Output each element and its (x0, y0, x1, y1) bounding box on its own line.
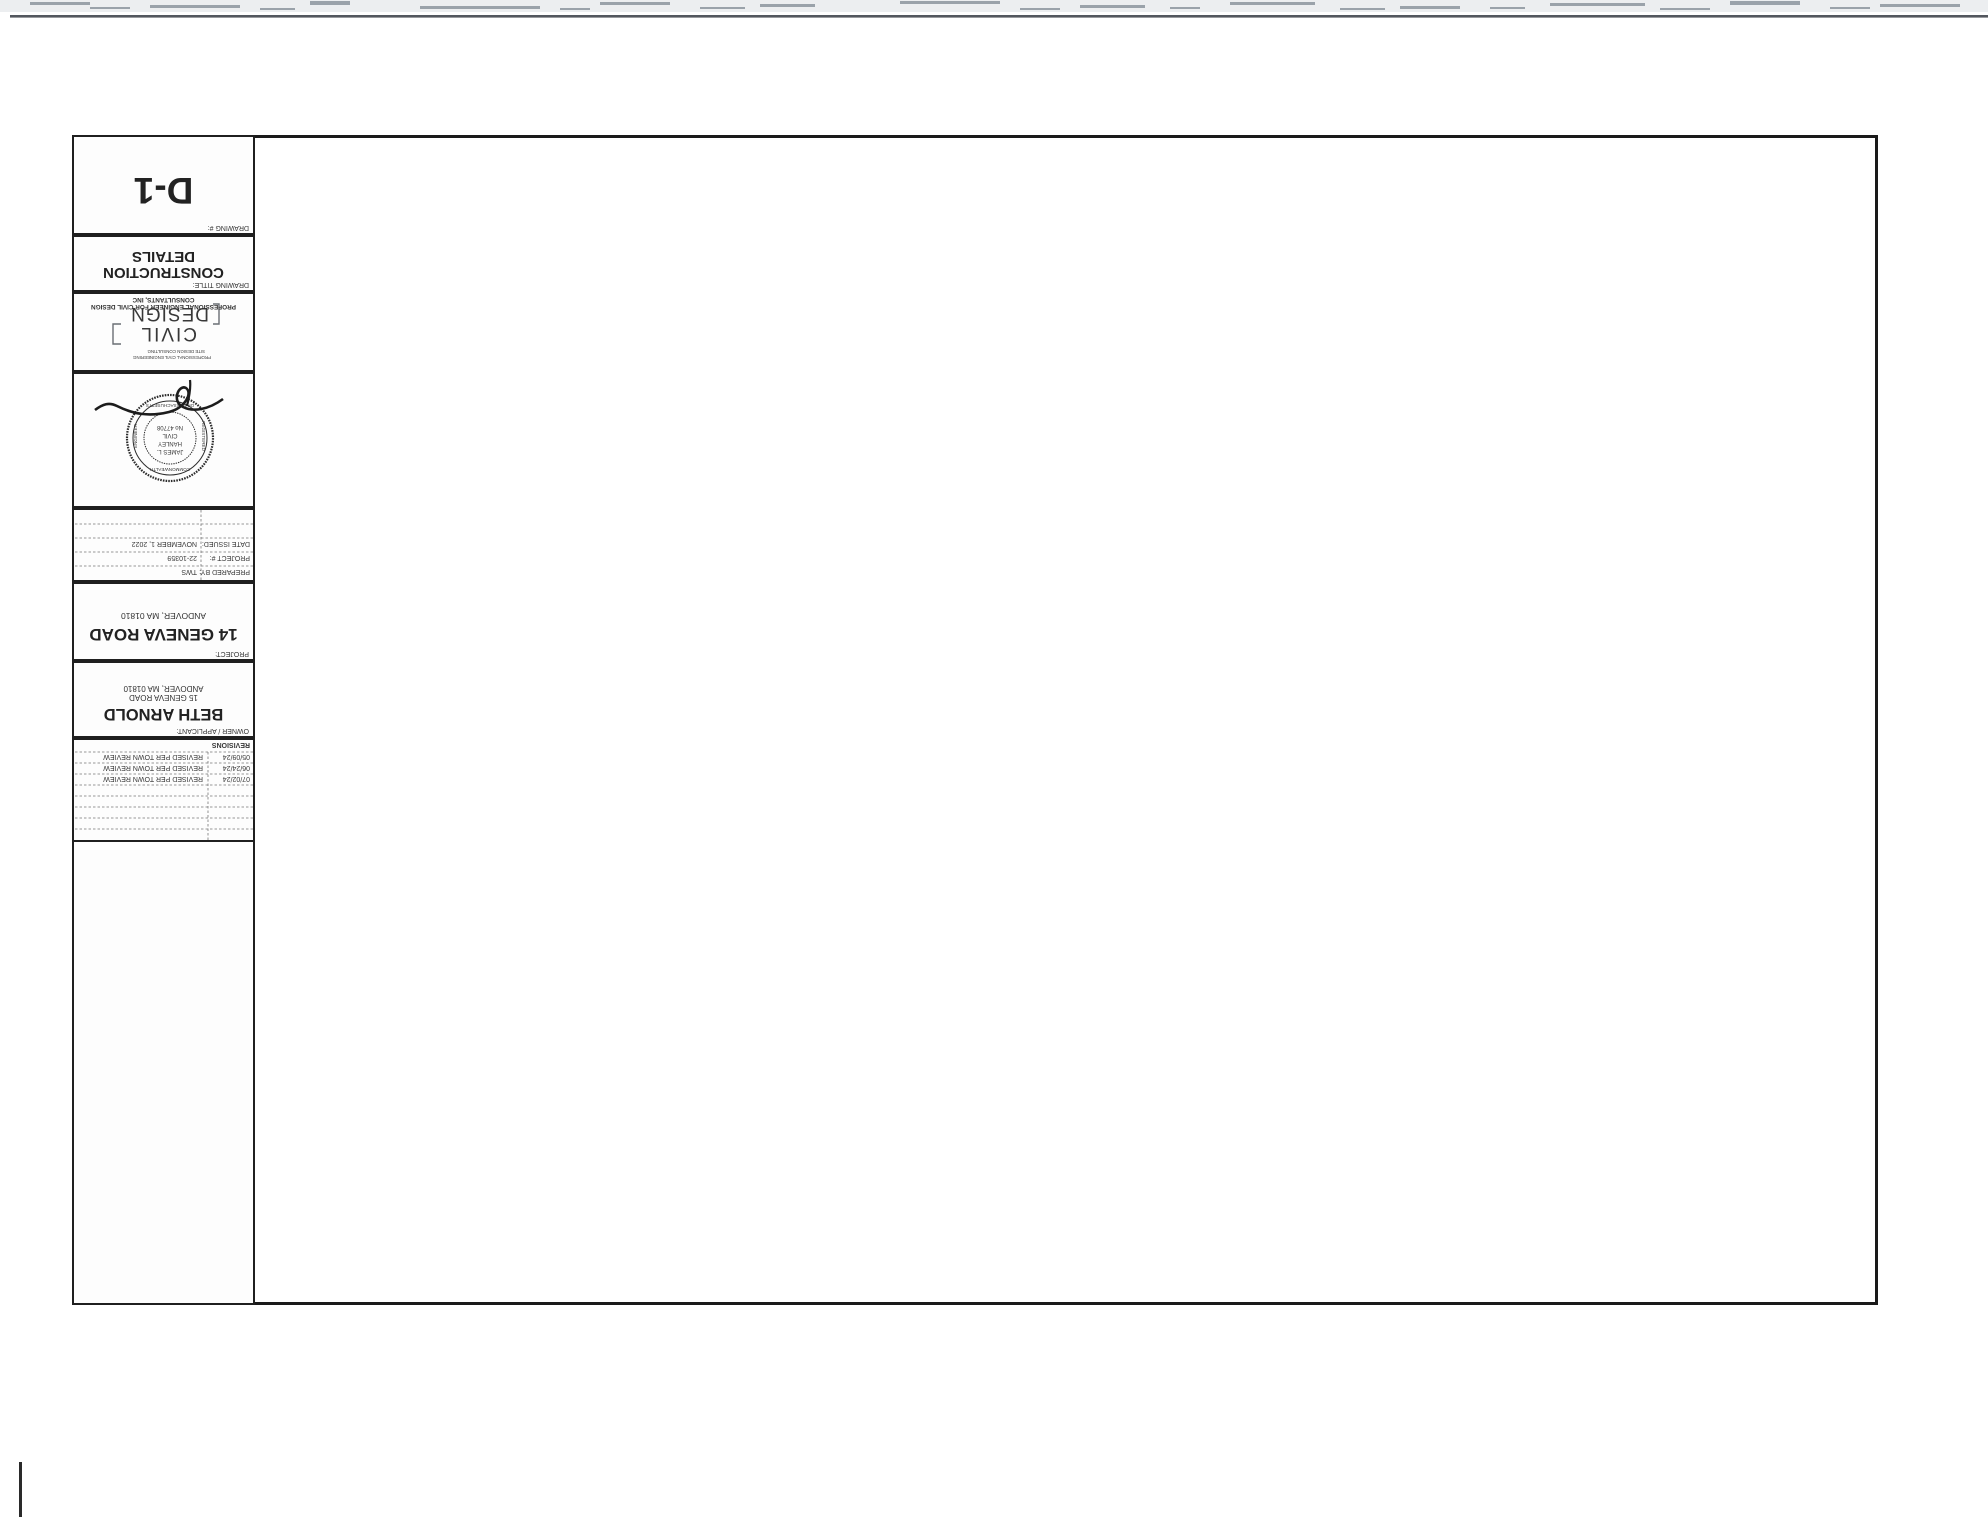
svg-text:No 47708: No 47708 (156, 424, 183, 430)
svg-text:05/09/24: 05/09/24 (223, 753, 250, 760)
svg-text:COMMONWEALTH: COMMONWEALTH (150, 467, 190, 472)
svg-text:07/02/24: 07/02/24 (223, 775, 250, 782)
svg-text:DATE ISSUED:: DATE ISSUED: (202, 540, 250, 547)
svg-text:CIVIL: CIVIL (162, 432, 178, 438)
svg-text:REVISED PER TOWN REVIEW: REVISED PER TOWN REVIEW (103, 775, 203, 782)
svg-text:SITE DESIGN CONSULTING: SITE DESIGN CONSULTING (147, 349, 205, 354)
svg-text:PREPARED BY:: PREPARED BY: (199, 568, 250, 575)
svg-text:CIVIL: CIVIL (139, 323, 197, 344)
svg-text:REGISTERED: REGISTERED (201, 421, 206, 452)
svg-text:PROJECT #:: PROJECT #: (210, 554, 250, 561)
svg-text:REVISED PER TOWN REVIEW: REVISED PER TOWN REVIEW (103, 753, 203, 760)
svg-text:HANLEY: HANLEY (158, 440, 182, 446)
svg-text:06/24/24: 06/24/24 (223, 764, 250, 771)
svg-text:ENGINEER: ENGINEER (133, 423, 138, 448)
svg-text:TWS: TWS (181, 568, 197, 575)
svg-text:22-10359: 22-10359 (167, 554, 197, 561)
svg-text:PROFESSIONAL CIVIL ENGINEERING: PROFESSIONAL CIVIL ENGINEERING (132, 355, 211, 360)
svg-text:REVISED PER TOWN REVIEW: REVISED PER TOWN REVIEW (103, 764, 203, 771)
svg-text:JAMES L.: JAMES L. (156, 448, 183, 454)
svg-text:REVISIONS: REVISIONS (212, 741, 250, 748)
svg-text:NOVEMBER 1, 2022: NOVEMBER 1, 2022 (132, 540, 197, 547)
